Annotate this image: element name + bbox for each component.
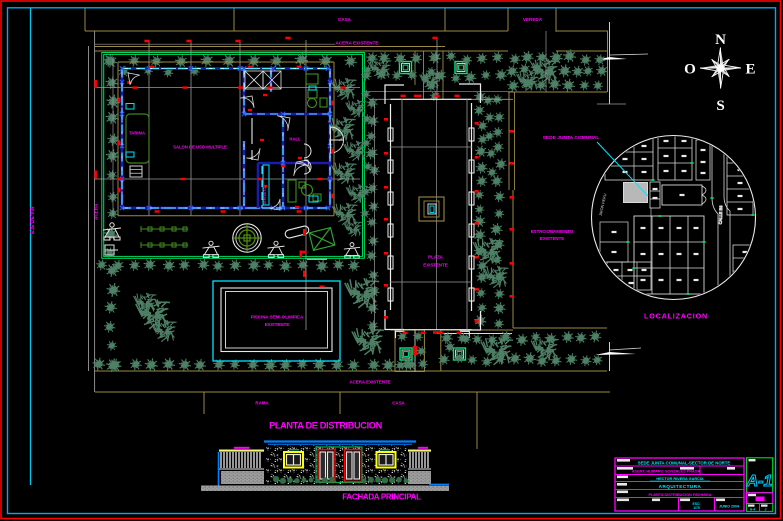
svg-text:HECTOR RIVERA GARCIA: HECTOR RIVERA GARCIA [656, 477, 704, 481]
svg-text:RAMA: RAMA [255, 401, 269, 406]
svg-text:ESTACIONAMIENTO: ESTACIONAMIENTO [531, 229, 574, 234]
svg-text:EXISTENTE: EXISTENTE [540, 236, 564, 241]
svg-text:PLANTA DE DISTRIBUCION: PLANTA DE DISTRIBUCION [269, 421, 382, 431]
svg-text:EXISTENTE: EXISTENTE [265, 322, 289, 327]
svg-text:1/75: 1/75 [693, 506, 700, 510]
svg-text:VEREDA: VEREDA [523, 17, 543, 22]
svg-text:O: O [684, 62, 696, 78]
svg-text:ACERA: ACERA [94, 203, 99, 220]
svg-text:TARIMA: TARIMA [129, 131, 145, 136]
svg-text:EJE DE VIA: EJE DE VIA [30, 206, 36, 234]
svg-text:SALON DE USO MULTIPLE: SALON DE USO MULTIPLE [173, 145, 227, 150]
svg-text:·: · [432, 208, 433, 212]
svg-text:A-4: A-4 [750, 507, 755, 511]
svg-text:SEDE JUNTA COMUNAL-SECTOR DE N: SEDE JUNTA COMUNAL-SECTOR DE NORTE [638, 461, 731, 466]
svg-text:CALLE B3: CALLE B3 [718, 205, 724, 225]
svg-text:JUNIO 2004: JUNIO 2004 [719, 505, 739, 509]
svg-text:ARQUITECTURA: ARQUITECTURA [659, 484, 702, 489]
svg-text:PLANTA DISTRIBUCION FACHADA: PLANTA DISTRIBUCION FACHADA [648, 493, 711, 497]
svg-text:CASA: CASA [392, 401, 405, 406]
svg-text:N: N [715, 32, 726, 48]
svg-text:PISCINA SEMI-OLIMPICA: PISCINA SEMI-OLIMPICA [251, 315, 304, 320]
svg-text:LOCALIZACION: LOCALIZACION [644, 312, 708, 321]
svg-text:SEDE JUNTA COMUNAL: SEDE JUNTA COMUNAL [543, 135, 600, 141]
svg-text:HALL: HALL [289, 137, 301, 142]
svg-text:PLAZA: PLAZA [428, 255, 443, 260]
svg-text:ACERA EXISTENTE: ACERA EXISTENTE [349, 380, 390, 385]
svg-text:J: J [765, 507, 767, 511]
svg-text:S: S [716, 98, 724, 114]
svg-text:CASA: CASA [338, 17, 352, 22]
svg-text:EXISTENTE: EXISTENTE [423, 263, 447, 268]
svg-text:DEPOSITO: DEPOSITO [263, 187, 267, 206]
svg-text:ASENT. HUMANO GONZALES PRADA: ASENT. HUMANO GONZALES PRADA [632, 470, 701, 474]
svg-text:A-1: A-1 [746, 473, 773, 490]
svg-text:E: E [745, 62, 755, 78]
svg-text:ACERA EXISTENTE: ACERA EXISTENTE [336, 41, 379, 46]
svg-text:FACHADA PRINCIPAL: FACHADA PRINCIPAL [342, 493, 421, 502]
